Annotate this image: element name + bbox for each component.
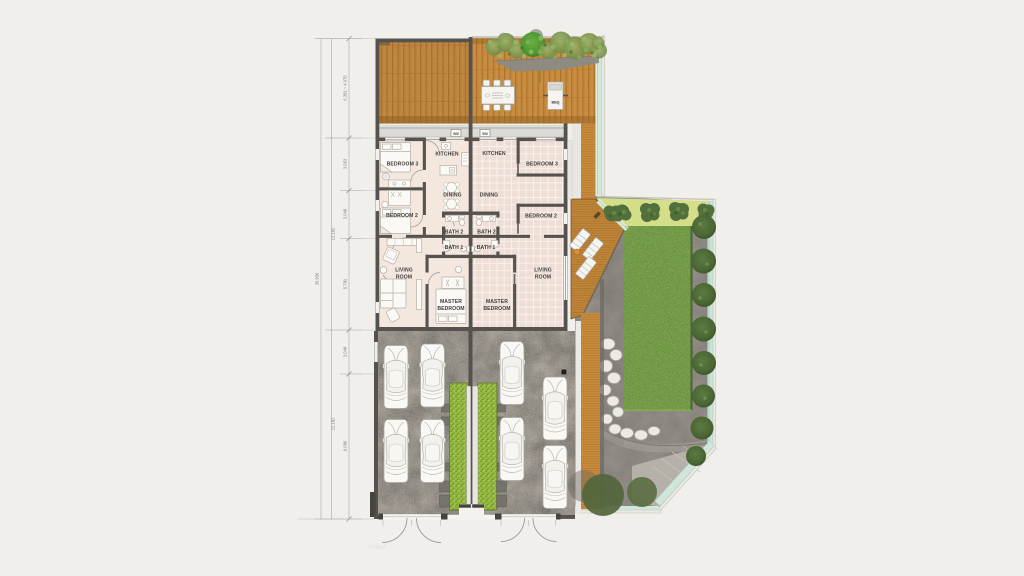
svg-text:BEDROOM: BEDROOM — [483, 306, 510, 312]
svg-text:BATH 2: BATH 2 — [477, 230, 496, 236]
svg-text:KITCHEN: KITCHEN — [482, 151, 506, 157]
svg-text:LIVING: LIVING — [395, 268, 413, 274]
svg-text:6.391 ~ 4.070: 6.391 ~ 4.070 — [343, 75, 348, 101]
svg-text:ROOM: ROOM — [535, 275, 551, 281]
svg-text:KITCHEN: KITCHEN — [435, 152, 459, 158]
svg-text:5.791: 5.791 — [343, 278, 348, 289]
svg-text:ROOM: ROOM — [396, 275, 412, 281]
svg-text:3.048: 3.048 — [343, 208, 348, 219]
svg-text:DINING: DINING — [480, 193, 498, 199]
svg-text:BEDROOM 3: BEDROOM 3 — [526, 162, 558, 168]
svg-text:12.192: 12.192 — [331, 417, 336, 430]
svg-text:BEDROOM: BEDROOM — [437, 306, 464, 312]
svg-text:6.096: 6.096 — [343, 440, 348, 451]
svg-text:SHMA: SHMA — [368, 544, 387, 551]
svg-text:DINING: DINING — [443, 193, 461, 199]
svg-text:BATH 2: BATH 2 — [445, 230, 464, 236]
svg-text:WM: WM — [482, 132, 488, 136]
svg-text:30.936: 30.936 — [315, 272, 320, 285]
svg-text:MASTER: MASTER — [486, 299, 508, 305]
svg-text:LIVING: LIVING — [534, 268, 552, 274]
svg-text:BATH 1: BATH 1 — [477, 245, 496, 251]
svg-text:BEDROOM 3: BEDROOM 3 — [387, 162, 419, 168]
svg-text:WM: WM — [453, 132, 459, 136]
svg-text:BEDROOM 2: BEDROOM 2 — [386, 213, 418, 219]
svg-text:BBQ: BBQ — [552, 101, 560, 105]
svg-text:BATH 1: BATH 1 — [445, 245, 464, 251]
svg-text:BEDROOM 2: BEDROOM 2 — [525, 214, 557, 220]
svg-text:MASTER: MASTER — [440, 299, 462, 305]
svg-text:3.048: 3.048 — [343, 346, 348, 357]
svg-text:12.192: 12.192 — [331, 227, 336, 240]
svg-text:3.063: 3.063 — [343, 158, 348, 169]
